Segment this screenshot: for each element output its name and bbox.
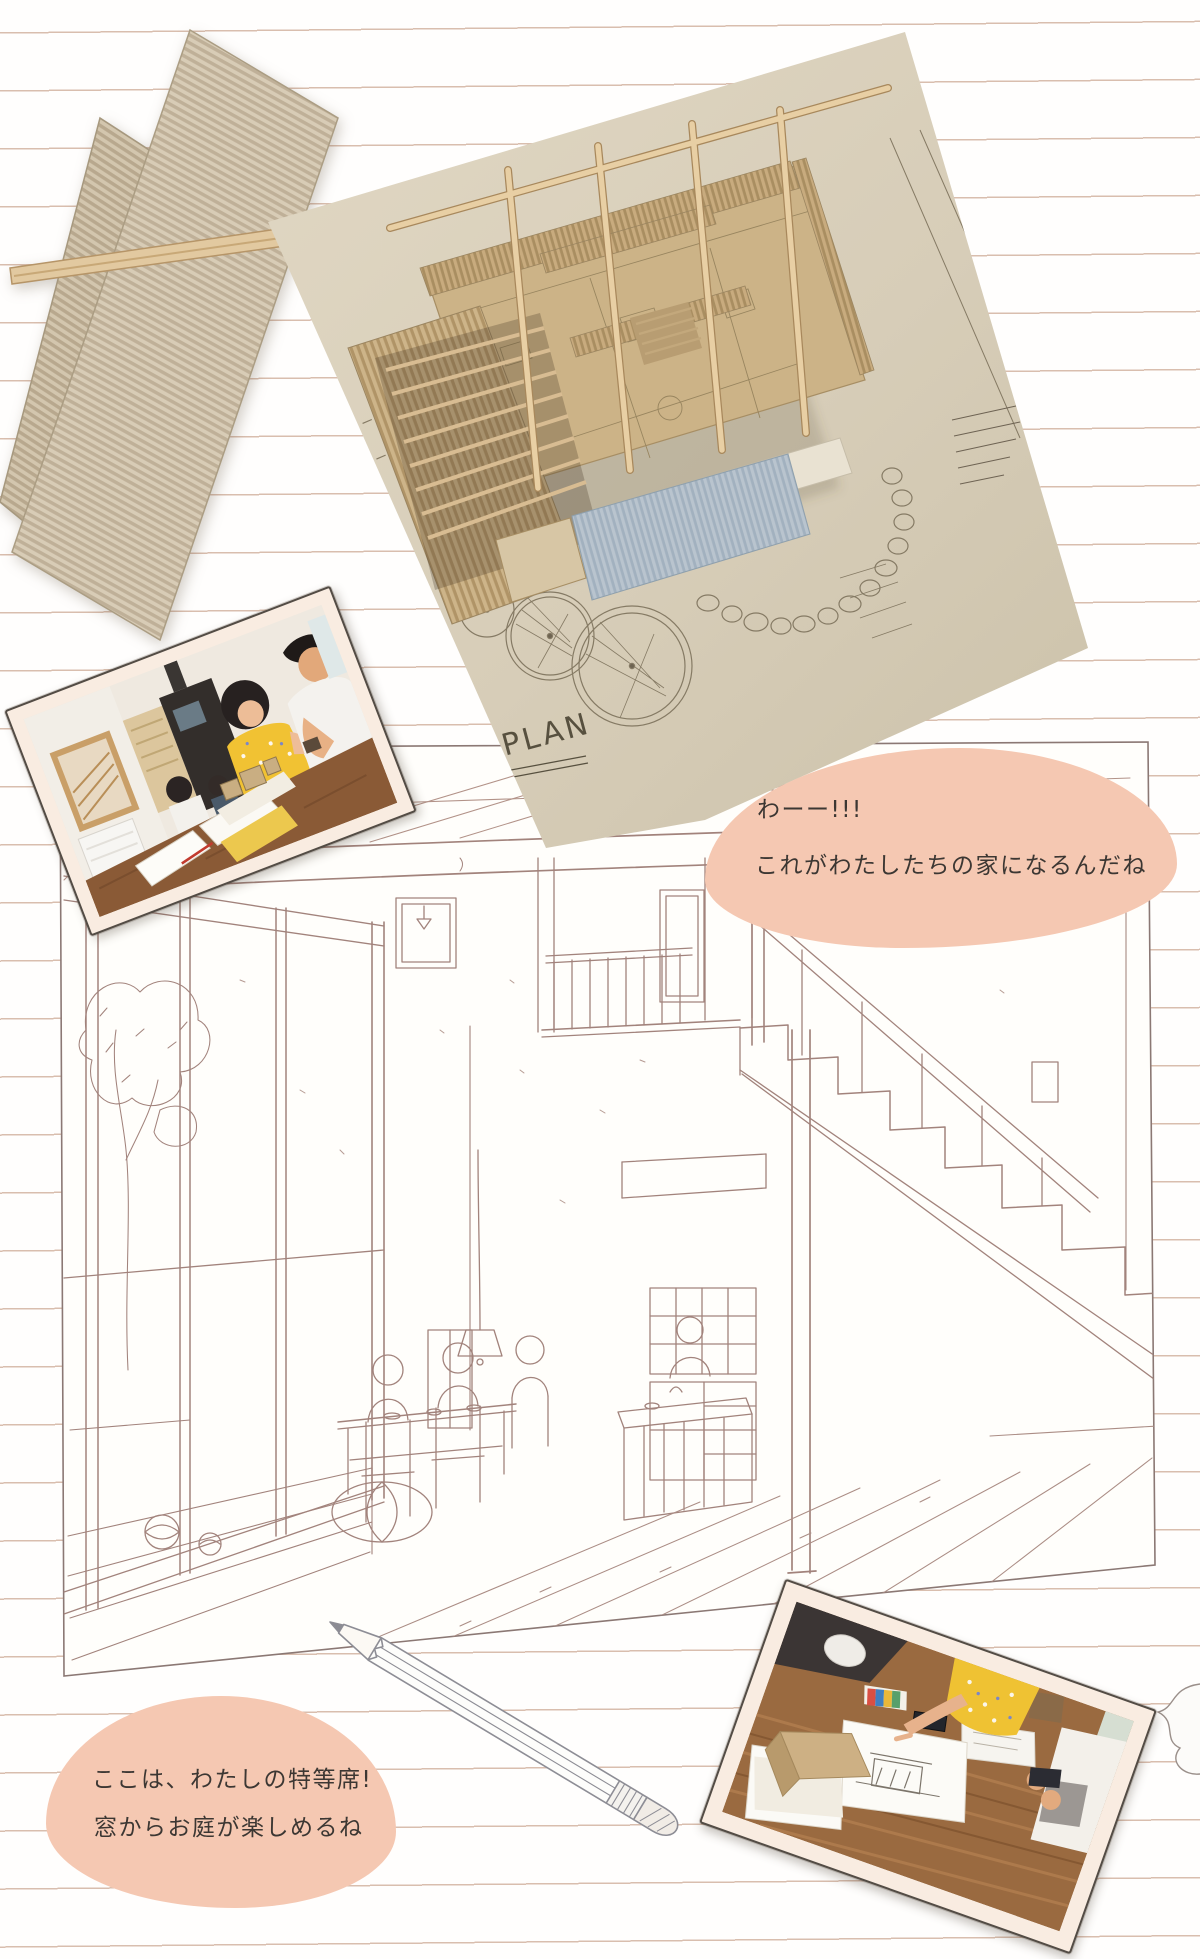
speech-bubble-bottom-line1: ここは、わたしの特等席! [92, 1754, 372, 1806]
scrapbook-page: 1F PLAN S=1/50 [0, 0, 1200, 1959]
speech-bubble-top-line1: わーー!!! [757, 784, 863, 836]
torn-paper-fragment [1152, 1678, 1200, 1788]
speech-bubble-bottom-line2: 窓からお庭が楽しめるね [94, 1802, 364, 1854]
speech-bubble-top-line2: これがわたしたちの家になるんだね [755, 840, 1147, 892]
